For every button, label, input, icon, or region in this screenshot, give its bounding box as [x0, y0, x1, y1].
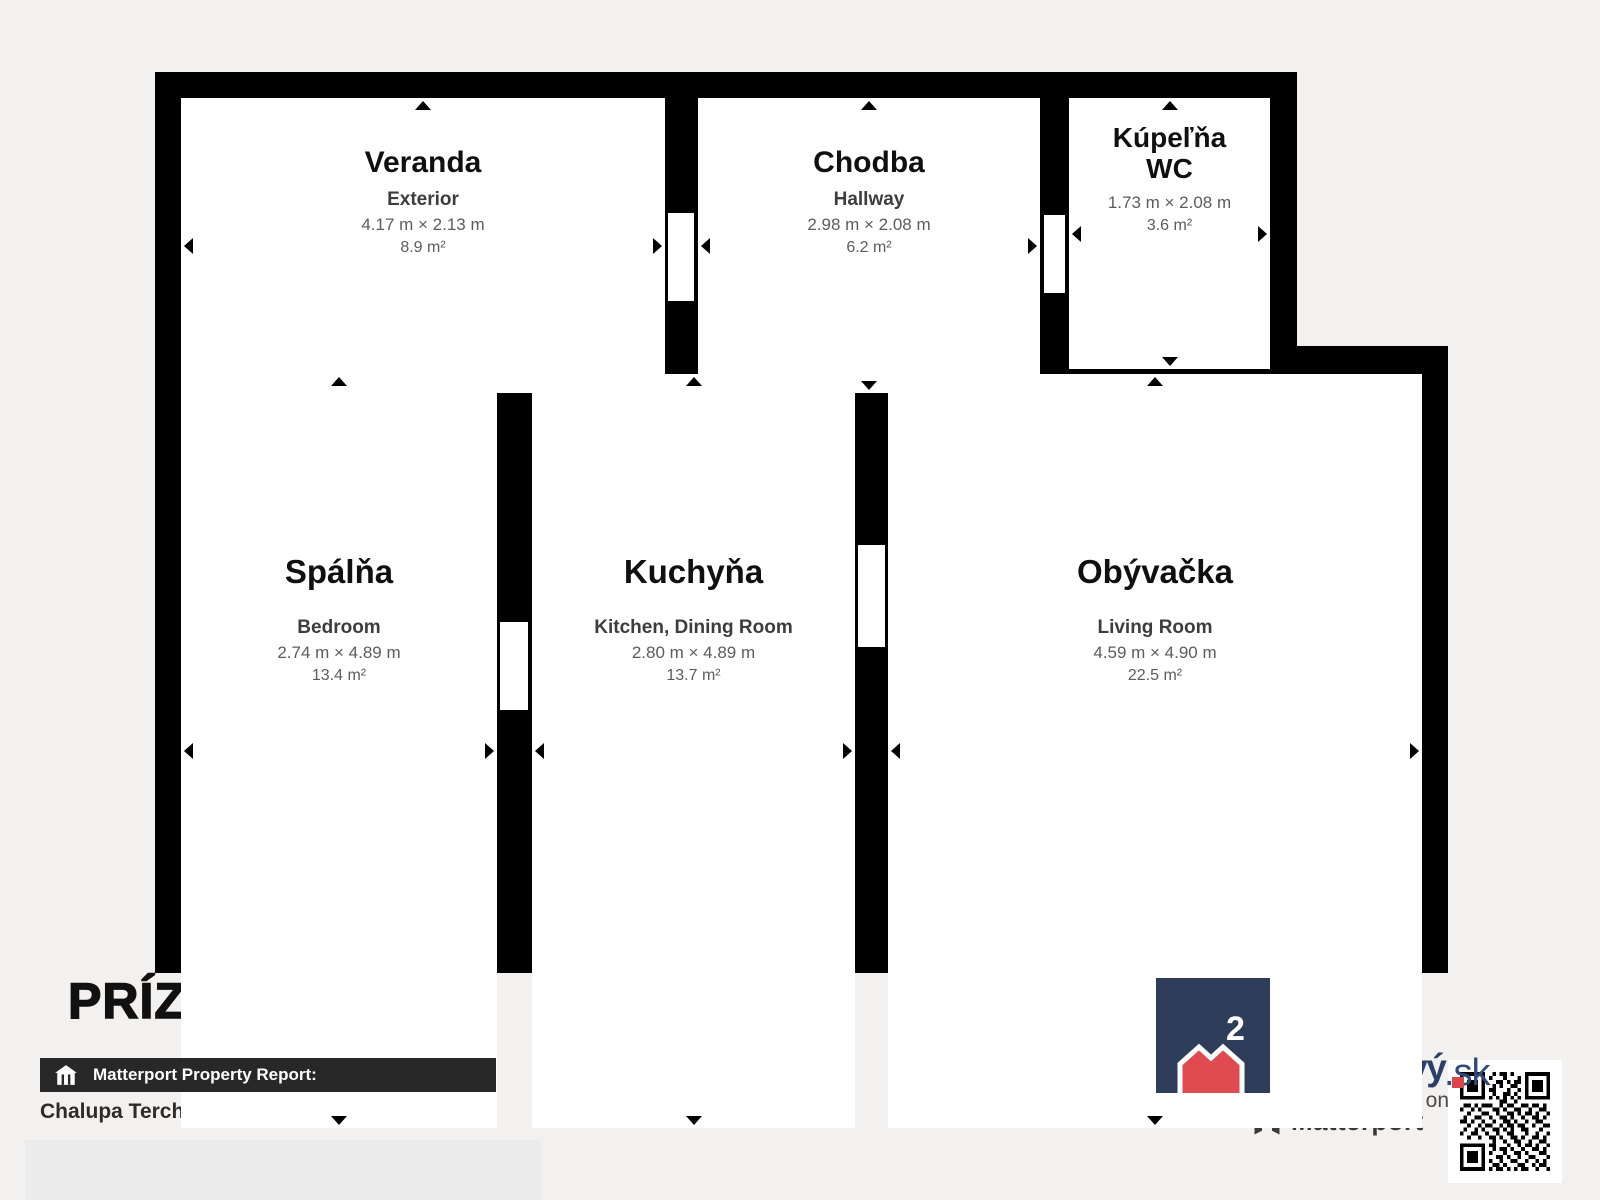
room-area: 22.5 m²	[1128, 667, 1182, 685]
measure-arrow-down-icon	[1147, 1116, 1163, 1125]
measure-arrow-left-icon	[184, 238, 193, 254]
measure-arrow-up-icon	[331, 377, 347, 386]
room-subtitle: Exterior	[387, 189, 459, 211]
measure-arrow-up-icon	[686, 377, 702, 386]
measure-arrow-up-icon	[415, 101, 431, 110]
room-dimensions: 2.98 m × 2.08 m	[807, 215, 930, 235]
logo-red-dot	[1452, 1077, 1464, 1088]
measure-arrow-right-icon	[843, 743, 852, 759]
measure-arrow-up-icon	[861, 101, 877, 110]
room-dimensions: 4.59 m × 4.90 m	[1093, 643, 1216, 663]
measure-arrow-down-icon	[686, 1116, 702, 1125]
report-bar-label: Matterport Property Report:	[93, 1065, 317, 1085]
measure-arrow-down-icon	[861, 381, 877, 390]
door-spalna-kuchyna	[500, 622, 528, 710]
room-veranda: Veranda Exterior 4.17 m × 2.13 m 8.9 m²	[181, 98, 665, 393]
meter-stvorcovy-logo: 2	[1156, 978, 1270, 1093]
measure-arrow-down-icon	[331, 1116, 347, 1125]
room-kupelna-wc: Kúpeľňa WC 1.73 m × 2.08 m 3.6 m²	[1069, 98, 1270, 369]
room-name: Chodba	[813, 146, 925, 180]
logo-tld: .sk	[1444, 1052, 1490, 1095]
room-area: 13.4 m²	[312, 667, 366, 685]
room-area: 3.6 m²	[1147, 217, 1192, 235]
room-name: Veranda	[365, 146, 482, 180]
measure-arrow-up-icon	[1162, 101, 1178, 110]
property-house-icon	[54, 1064, 78, 1086]
measure-arrow-left-icon	[535, 743, 544, 759]
room-chodba: Chodba Hallway 2.98 m × 2.08 m 6.2 m²	[698, 98, 1040, 393]
measure-arrow-right-icon	[653, 238, 662, 254]
room-area: 6.2 m²	[846, 239, 891, 257]
room-subtitle: Hallway	[834, 189, 905, 211]
measure-arrow-down-icon	[1162, 357, 1178, 366]
measure-arrow-right-icon	[485, 743, 494, 759]
room-name: Spálňa	[285, 554, 393, 591]
room-obyvacka: Obývačka Living Room 4.59 m × 4.90 m 22.…	[888, 374, 1422, 1128]
measure-arrow-left-icon	[701, 238, 710, 254]
door-veranda-chodba	[668, 213, 694, 301]
room-kuchyna: Kuchyňa Kitchen, Dining Room 2.80 m × 4.…	[532, 374, 855, 1128]
room-area: 13.7 m²	[666, 667, 720, 685]
measure-arrow-left-icon	[891, 743, 900, 759]
report-bar: Matterport Property Report:	[40, 1058, 496, 1092]
room-dimensions: 2.74 m × 4.89 m	[277, 643, 400, 663]
room-dimensions: 1.73 m × 2.08 m	[1108, 193, 1231, 213]
room-name: Obývačka	[1077, 554, 1233, 591]
room-name: Kuchyňa	[624, 554, 763, 591]
room-dimensions: 4.17 m × 2.13 m	[361, 215, 484, 235]
room-subtitle: Living Room	[1097, 617, 1212, 639]
room-area: 8.9 m²	[400, 239, 445, 257]
room-subtitle: Kitchen, Dining Room	[594, 617, 792, 639]
room-spalna: Spálňa Bedroom 2.74 m × 4.89 m 13.4 m²	[181, 374, 497, 1128]
measure-arrow-left-icon	[184, 743, 193, 759]
room-name: Kúpeľňa WC	[1095, 122, 1245, 185]
measure-arrow-up-icon	[1147, 377, 1163, 386]
measure-arrow-right-icon	[1410, 743, 1419, 759]
door-kuchyna-obyvacka	[858, 545, 885, 647]
footer-panel	[25, 1140, 541, 1200]
measure-arrow-right-icon	[1258, 226, 1267, 242]
door-chodba-kupelna	[1044, 215, 1065, 293]
room-dimensions: 2.80 m × 4.89 m	[632, 643, 755, 663]
measure-arrow-left-icon	[1072, 226, 1081, 242]
room-subtitle: Bedroom	[297, 617, 380, 639]
measure-arrow-right-icon	[1028, 238, 1037, 254]
door-chodba-kuchyna	[716, 350, 815, 374]
red-house-m-icon	[1172, 1038, 1258, 1093]
